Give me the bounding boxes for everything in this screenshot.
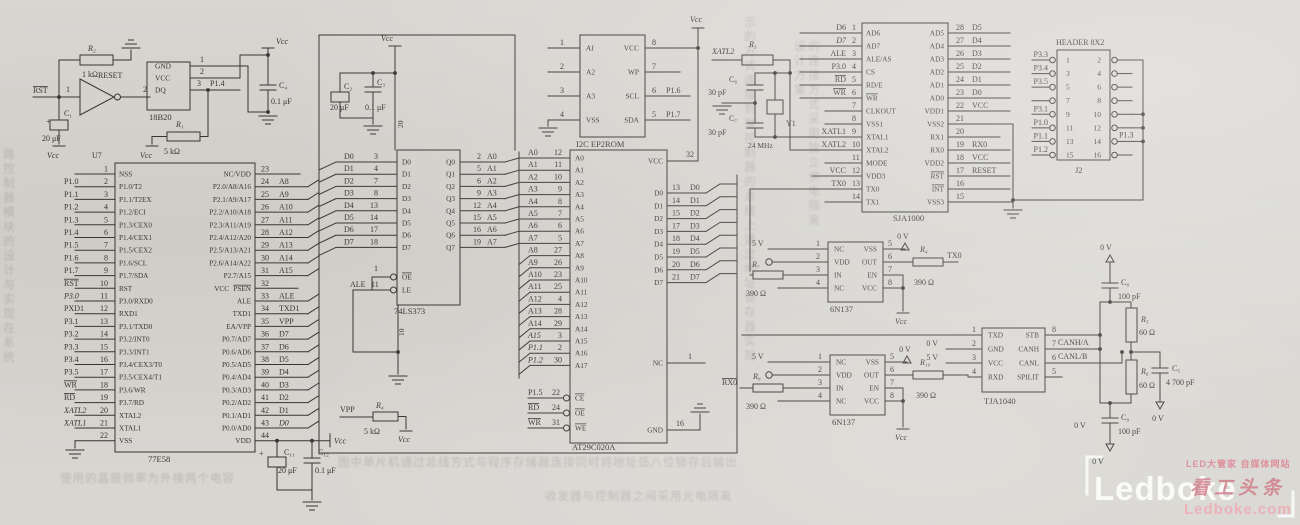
pin-name: EN bbox=[867, 271, 877, 280]
pin-name: D3 bbox=[654, 227, 663, 236]
wire bbox=[319, 223, 336, 231]
pin-number: 25 bbox=[956, 62, 964, 71]
pin-number: 18 bbox=[100, 380, 108, 389]
net-label: P3.0 bbox=[63, 292, 79, 301]
pin-name: P0.4/AD4 bbox=[222, 374, 251, 382]
pin-number: 13 bbox=[672, 183, 680, 192]
pin-name: P1.2/ECI bbox=[119, 209, 146, 217]
pin-number: 11 bbox=[852, 153, 860, 162]
net-label: A9 bbox=[279, 190, 289, 199]
pin-number: 2 bbox=[818, 365, 822, 374]
pin-name: WR bbox=[866, 94, 878, 103]
pin-number: 25 bbox=[261, 190, 269, 199]
label: 0 V bbox=[1074, 421, 1086, 430]
net-label: P1.7 bbox=[64, 266, 78, 275]
net-label: A2 bbox=[487, 176, 497, 185]
pin-number: 3 bbox=[104, 190, 108, 199]
chip-name: SJA1000 bbox=[893, 213, 924, 223]
pin-name: RXD1 bbox=[119, 310, 138, 318]
part-ref: R₅ bbox=[1140, 315, 1149, 324]
component-outline bbox=[167, 132, 200, 141]
pin-name: CE bbox=[575, 394, 585, 403]
net-label: D6 bbox=[279, 342, 289, 351]
pin-bubble bbox=[1050, 152, 1056, 158]
pin-name: TXD bbox=[988, 331, 1003, 340]
pin-name: TX1 bbox=[866, 198, 880, 207]
pin-name: EA/VPP bbox=[226, 323, 251, 331]
pin-name: OE bbox=[575, 409, 585, 418]
pin-bubble bbox=[564, 410, 570, 416]
net-label: A1 bbox=[487, 164, 497, 173]
pin-number: 5 bbox=[852, 75, 856, 84]
component-outline bbox=[1057, 50, 1110, 160]
pin-name: D7 bbox=[402, 243, 411, 252]
pin-bubble bbox=[1112, 57, 1118, 63]
pin-name: NC bbox=[834, 284, 844, 293]
part-value: 30 pF bbox=[708, 88, 727, 97]
net-label: P1.1 bbox=[527, 343, 543, 352]
pin-number: 26 bbox=[956, 49, 964, 58]
part-value: 0.1 μF bbox=[365, 103, 386, 112]
net-label: D3 bbox=[690, 221, 700, 230]
part-ref: C₂ bbox=[344, 82, 352, 91]
pin-number: 2 bbox=[816, 252, 820, 261]
pin-number: 10 bbox=[554, 172, 562, 181]
junction-dot bbox=[788, 71, 792, 75]
part-value: 100 pF bbox=[1118, 292, 1141, 301]
pin-bubble bbox=[564, 425, 570, 431]
wire bbox=[706, 184, 720, 193]
pin-number: 7 bbox=[374, 176, 378, 185]
net-label: A4 bbox=[528, 197, 538, 206]
wire bbox=[706, 261, 720, 270]
component-outline bbox=[115, 163, 255, 452]
pin-name: P3.2/INT0 bbox=[119, 336, 150, 344]
net-label: D4 bbox=[972, 36, 982, 45]
part-ref: C₉ bbox=[1121, 413, 1129, 422]
pin-number: 26 bbox=[261, 203, 269, 212]
pin-number: 41 bbox=[261, 393, 269, 402]
pin-number: 6 bbox=[558, 221, 562, 230]
net-label: P3.3 bbox=[1034, 50, 1048, 59]
pin-name: VCC bbox=[862, 284, 877, 293]
wire bbox=[308, 294, 319, 301]
pin-number: 22 bbox=[552, 388, 560, 397]
net-label: P3.0 bbox=[832, 62, 846, 71]
wire bbox=[319, 186, 336, 194]
pin-number: 8 bbox=[558, 197, 562, 206]
pin-number: 4 bbox=[816, 278, 820, 287]
junction-dot bbox=[266, 53, 270, 57]
wire bbox=[308, 383, 319, 390]
wire bbox=[706, 222, 720, 231]
pin-name: D0 bbox=[654, 189, 663, 198]
net-label: P3.4 bbox=[64, 355, 78, 364]
pin-bubble bbox=[1112, 139, 1118, 145]
pin-name: D4 bbox=[654, 240, 663, 249]
label: Vcc bbox=[398, 435, 410, 444]
pin-number: 4 bbox=[972, 367, 976, 376]
pin-number: 40 bbox=[261, 380, 269, 389]
pin-bubble bbox=[391, 287, 397, 293]
part-ref: C₃ bbox=[377, 78, 385, 87]
net-label: P1.7 bbox=[666, 110, 680, 119]
component-outline bbox=[767, 100, 783, 114]
schematic-canvas: RST12RESETR₂1 kΩ+VccC₁20 μF18B20GNDVCCDQ… bbox=[0, 0, 1300, 525]
pin-number: 5 bbox=[1052, 367, 1056, 376]
pin-number: 14 bbox=[852, 192, 860, 201]
part-value: 5 kΩ bbox=[364, 427, 380, 436]
pin-number: 12 bbox=[100, 304, 108, 313]
pin-number: 2 bbox=[972, 339, 976, 348]
pin-name: A5 bbox=[575, 215, 584, 224]
part-value: 30 pF bbox=[708, 128, 727, 137]
net-label: A14 bbox=[528, 319, 542, 328]
pin-name: P2.7/A15 bbox=[224, 272, 252, 280]
pin-number: 3 bbox=[197, 79, 201, 88]
net-label: D5 bbox=[690, 247, 700, 256]
wire bbox=[706, 210, 720, 219]
pin-number: 8 bbox=[104, 253, 108, 262]
net-label: P1.4 bbox=[210, 79, 224, 88]
pin-name: P1.7/SDA bbox=[119, 272, 149, 280]
net-label: A0 bbox=[487, 152, 497, 161]
net-label: RST bbox=[64, 279, 79, 288]
net-label: RD bbox=[528, 403, 539, 412]
pin-name: CLKOUT bbox=[866, 107, 896, 116]
pin-number: 5 bbox=[888, 239, 892, 248]
net-label: A4 bbox=[487, 201, 497, 210]
net-label: D3 bbox=[972, 49, 982, 58]
net-label: D3 bbox=[279, 380, 289, 389]
net-label: D1 bbox=[972, 75, 982, 84]
net-label: A13 bbox=[528, 307, 542, 316]
junction-dot bbox=[1098, 347, 1102, 351]
net-label: D2 bbox=[690, 209, 700, 218]
pin-bubble bbox=[1050, 125, 1056, 131]
wire bbox=[505, 170, 519, 174]
pin-number: 8 bbox=[374, 189, 378, 198]
net-label: A3 bbox=[528, 185, 538, 194]
pin-number: 26 bbox=[554, 258, 562, 267]
label: 0 V bbox=[897, 232, 909, 241]
pin-number: 1 bbox=[972, 325, 976, 334]
pin-number: 1 bbox=[688, 352, 692, 361]
pin-number: 44 bbox=[261, 431, 269, 440]
pin-name: DQ bbox=[155, 86, 166, 95]
pin-name: WE bbox=[575, 424, 587, 433]
junction-dot bbox=[696, 46, 700, 50]
label: 0 V bbox=[926, 339, 938, 348]
pin-number: 32 bbox=[686, 150, 694, 159]
net-label: A7 bbox=[528, 233, 538, 242]
net-label: D2 bbox=[279, 393, 289, 402]
pin-name: SPILIT bbox=[1017, 373, 1039, 382]
component-outline bbox=[373, 412, 398, 421]
pin-number: 15 bbox=[672, 209, 680, 218]
pin-name: A4 bbox=[575, 202, 584, 211]
pin-number: 16 bbox=[956, 179, 964, 188]
part-ref: R₄ bbox=[375, 401, 384, 410]
pin-number: 18 bbox=[672, 234, 680, 243]
net-label: ALE bbox=[830, 49, 846, 58]
pin-number: 35 bbox=[261, 317, 269, 326]
pin-number: 3 bbox=[560, 86, 564, 95]
part-value: 0.1 μF bbox=[315, 466, 336, 475]
part-value: 390 Ω bbox=[916, 391, 936, 400]
pin-number: 24 bbox=[956, 75, 964, 84]
part-value: 20 μF bbox=[330, 103, 349, 112]
pin-name: P3.1/TXD0 bbox=[119, 323, 153, 331]
net-label: D1 bbox=[690, 196, 700, 205]
net-label: P3.5 bbox=[1034, 77, 1048, 86]
net-label: XATL2 bbox=[822, 140, 846, 149]
net-label: D7 bbox=[835, 36, 847, 45]
pin-name: A8 bbox=[575, 251, 584, 260]
net-label: P3.5 bbox=[64, 368, 78, 377]
pin-number: 3 bbox=[818, 378, 822, 387]
pin-name: NSS bbox=[119, 171, 132, 179]
wire bbox=[706, 235, 720, 244]
pin-name: XTAL2 bbox=[119, 412, 142, 420]
pin-number: 6 bbox=[652, 86, 656, 95]
pin-name: VDD2 bbox=[925, 159, 945, 168]
pin-name: A17 bbox=[575, 361, 588, 370]
wire bbox=[505, 207, 519, 211]
part-ref: C₁₁ bbox=[284, 448, 295, 457]
pin-number: 12 bbox=[1094, 123, 1102, 132]
pin-number: 15 bbox=[100, 342, 108, 351]
pin-number: 14 bbox=[100, 330, 108, 339]
pin-name: P2.6/A14/A22 bbox=[209, 259, 251, 267]
pin-number: 13 bbox=[1066, 137, 1074, 146]
pin-number: 12 bbox=[852, 166, 860, 175]
pin-name: RXD bbox=[988, 373, 1003, 382]
pin-number: 23 bbox=[261, 165, 269, 174]
part-ref: C₁ bbox=[64, 109, 72, 118]
pin-number: 28 bbox=[956, 23, 964, 32]
chip-name: TJA1040 bbox=[984, 396, 1016, 406]
wire bbox=[505, 243, 519, 247]
pin-number: 29 bbox=[554, 319, 562, 328]
pin-name: A13 bbox=[575, 312, 588, 321]
wire bbox=[308, 319, 319, 326]
net-label: A5 bbox=[487, 213, 497, 222]
wire bbox=[505, 219, 519, 223]
label: Vcc bbox=[140, 151, 152, 160]
pin-name: MODE bbox=[866, 159, 888, 168]
pin-number: 6 bbox=[1052, 353, 1056, 362]
net-label: CANH/A bbox=[1058, 338, 1089, 347]
pin-number: 2 bbox=[852, 36, 856, 45]
pin-number: 15 bbox=[1066, 150, 1074, 159]
label: Vcc bbox=[47, 151, 59, 160]
net-label: A6 bbox=[528, 221, 538, 230]
pin-name: XTAL1 bbox=[119, 425, 142, 433]
part-value: 100 pF bbox=[1118, 427, 1141, 436]
pin-name: D6 bbox=[402, 231, 411, 240]
net-label: WR bbox=[528, 418, 542, 427]
net-label: P3.3 bbox=[64, 342, 78, 351]
pin-name: A12 bbox=[575, 300, 588, 309]
wire bbox=[319, 235, 336, 243]
pin-name: P1.4/CEX1 bbox=[119, 234, 152, 242]
pin-bubble bbox=[1050, 71, 1056, 77]
part-ref: C₄ bbox=[279, 81, 287, 90]
wire bbox=[706, 248, 720, 257]
net-label: D5 bbox=[279, 355, 289, 364]
pin-name: Q5 bbox=[446, 219, 455, 228]
net-label: D2 bbox=[344, 176, 354, 185]
pin-name: VSS3 bbox=[927, 198, 944, 207]
pin-name: ALE bbox=[237, 298, 252, 306]
net-label: A8 bbox=[279, 177, 289, 186]
net-label: D1 bbox=[344, 164, 354, 173]
pin-name: AD4 bbox=[930, 42, 945, 51]
pin-number: 23 bbox=[554, 270, 562, 279]
pin-number: 8 bbox=[852, 114, 856, 123]
pin-number: 21 bbox=[100, 419, 108, 428]
pin-number: 33 bbox=[261, 292, 269, 301]
pin-number: 11 bbox=[100, 292, 108, 301]
pin-name: P0.0/AD0 bbox=[222, 425, 251, 433]
net-label: XATL2 bbox=[711, 47, 734, 56]
pin-name: VSS bbox=[119, 437, 132, 445]
pin-number: 31 bbox=[552, 418, 560, 427]
pin-name: A0 bbox=[575, 154, 584, 163]
pin-name: PSEN bbox=[233, 285, 251, 293]
pin-bubble bbox=[1050, 57, 1056, 63]
wire bbox=[308, 218, 319, 225]
part-ref: C₆ bbox=[729, 75, 737, 84]
wire bbox=[308, 332, 319, 339]
wire bbox=[308, 370, 319, 377]
pin-number: 10 bbox=[852, 140, 860, 149]
pin-number: 4 bbox=[818, 391, 822, 400]
wire bbox=[308, 358, 319, 365]
pin-number: 19 bbox=[956, 140, 964, 149]
wire bbox=[308, 307, 319, 314]
pin-number: 5 bbox=[477, 164, 481, 173]
net-label: P1.2 bbox=[527, 355, 543, 364]
pin-name: TX0 bbox=[866, 185, 880, 194]
pin-name: Q6 bbox=[446, 231, 455, 240]
part-ref: R₁ bbox=[175, 120, 184, 129]
pin-number: 25 bbox=[554, 282, 562, 291]
chip-name: 74LS373 bbox=[394, 306, 425, 316]
pin-bubble bbox=[1112, 152, 1118, 158]
pin-name: VDD3 bbox=[866, 172, 886, 181]
junction-dot bbox=[393, 71, 397, 75]
net-label: VCC bbox=[830, 166, 846, 175]
wire bbox=[308, 421, 319, 428]
pin-number: 29 bbox=[261, 241, 269, 250]
pin-number: 3 bbox=[1066, 69, 1070, 78]
pin-number: 30 bbox=[261, 253, 269, 262]
pin-number: 1 bbox=[104, 165, 108, 174]
label: Vcc bbox=[381, 34, 393, 43]
pin-number: 9 bbox=[852, 127, 856, 136]
net-label: P1.3 bbox=[1119, 130, 1133, 139]
label: 5 V bbox=[926, 353, 938, 362]
pin-number: 42 bbox=[261, 406, 269, 415]
junction-dot bbox=[310, 439, 314, 443]
pin-number: 7 bbox=[652, 62, 656, 71]
net-label: D5 bbox=[344, 213, 354, 222]
pin-number: 8 bbox=[890, 391, 894, 400]
pin-name: P2.4/A12/A20 bbox=[209, 234, 251, 242]
pin-name: P3.3/INT1 bbox=[119, 348, 150, 356]
part-ref: C₁₂ bbox=[318, 448, 329, 457]
net-label: A5 bbox=[528, 209, 538, 218]
pin-name: AD1 bbox=[930, 81, 945, 90]
pin-name: D3 bbox=[402, 194, 411, 203]
part-value: 390 Ω bbox=[746, 289, 766, 298]
net-label: D6 bbox=[690, 260, 700, 269]
pin-name: P3.0/RXD0 bbox=[119, 298, 153, 306]
pin-name: Q3 bbox=[446, 194, 455, 203]
pin-number: 1 bbox=[200, 55, 204, 64]
wire bbox=[308, 192, 319, 199]
part-value: 20 μF bbox=[42, 134, 61, 143]
pin-name: EN bbox=[869, 384, 879, 393]
net-label: A11 bbox=[528, 282, 541, 291]
net-label: P3.2 bbox=[64, 330, 78, 339]
pin-name: CANL bbox=[1019, 359, 1039, 368]
chip-name: AT29C020A bbox=[572, 442, 616, 452]
pin-number: 28 bbox=[261, 228, 269, 237]
pin-number: 6 bbox=[852, 88, 856, 97]
pin-number: 7 bbox=[888, 265, 892, 274]
pin-number: 27 bbox=[554, 246, 562, 255]
pin-number: 6 bbox=[477, 176, 481, 185]
net-label: WR bbox=[64, 380, 78, 389]
pin-name: AD2 bbox=[930, 68, 945, 77]
pin-number: 5 bbox=[890, 352, 894, 361]
pin-name: Q4 bbox=[446, 206, 455, 215]
pin-name: P2.0/A8/A16 bbox=[213, 183, 252, 191]
pin-number: 20 bbox=[956, 127, 964, 136]
net-label: XATL2 bbox=[63, 406, 86, 415]
pin-number: 7 bbox=[1066, 96, 1070, 105]
pin-name: GND bbox=[988, 345, 1004, 354]
net-label: A13 bbox=[279, 241, 293, 250]
net-label: A2 bbox=[528, 172, 538, 181]
net-label: CANL/B bbox=[1058, 352, 1087, 361]
pin-number: 38 bbox=[261, 355, 269, 364]
pin-number: 13 bbox=[852, 179, 860, 188]
pin-number: 1 bbox=[374, 264, 378, 273]
net-label: PXD1 bbox=[64, 304, 84, 313]
pin-number: 32 bbox=[261, 279, 269, 288]
component-outline bbox=[742, 55, 773, 65]
net-label: D6 bbox=[344, 225, 354, 234]
pin-number: 18 bbox=[956, 153, 964, 162]
pin-number: 37 bbox=[261, 342, 269, 351]
pin-name: INT bbox=[932, 185, 945, 194]
pin-name: P1.6/SCL bbox=[119, 259, 147, 267]
pin-number: 13 bbox=[370, 201, 378, 210]
pin-name: VCC bbox=[155, 74, 170, 83]
pin-name: AD6 bbox=[866, 29, 881, 38]
pin-number: 2 bbox=[558, 343, 562, 352]
pin-name: OUT bbox=[862, 258, 878, 267]
pin-number: 9 bbox=[1066, 110, 1070, 119]
pin-number: 27 bbox=[261, 215, 269, 224]
pin-number: 27 bbox=[956, 36, 964, 45]
pin-name: P2.5/A13/A21 bbox=[209, 247, 251, 255]
label: 5 V bbox=[752, 239, 764, 248]
